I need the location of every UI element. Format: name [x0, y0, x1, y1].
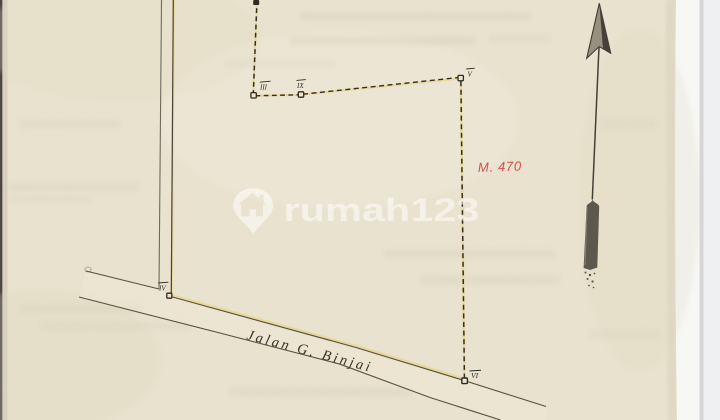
svg-text:M. 470: M. 470: [478, 158, 522, 175]
svg-text:IX: IX: [296, 82, 304, 90]
svg-text:III: III: [259, 84, 268, 92]
svg-text:V: V: [468, 70, 473, 78]
svg-text:VI: VI: [471, 371, 479, 380]
svg-text:IV: IV: [158, 285, 166, 293]
svg-text:rumah123: rumah123: [284, 192, 480, 228]
